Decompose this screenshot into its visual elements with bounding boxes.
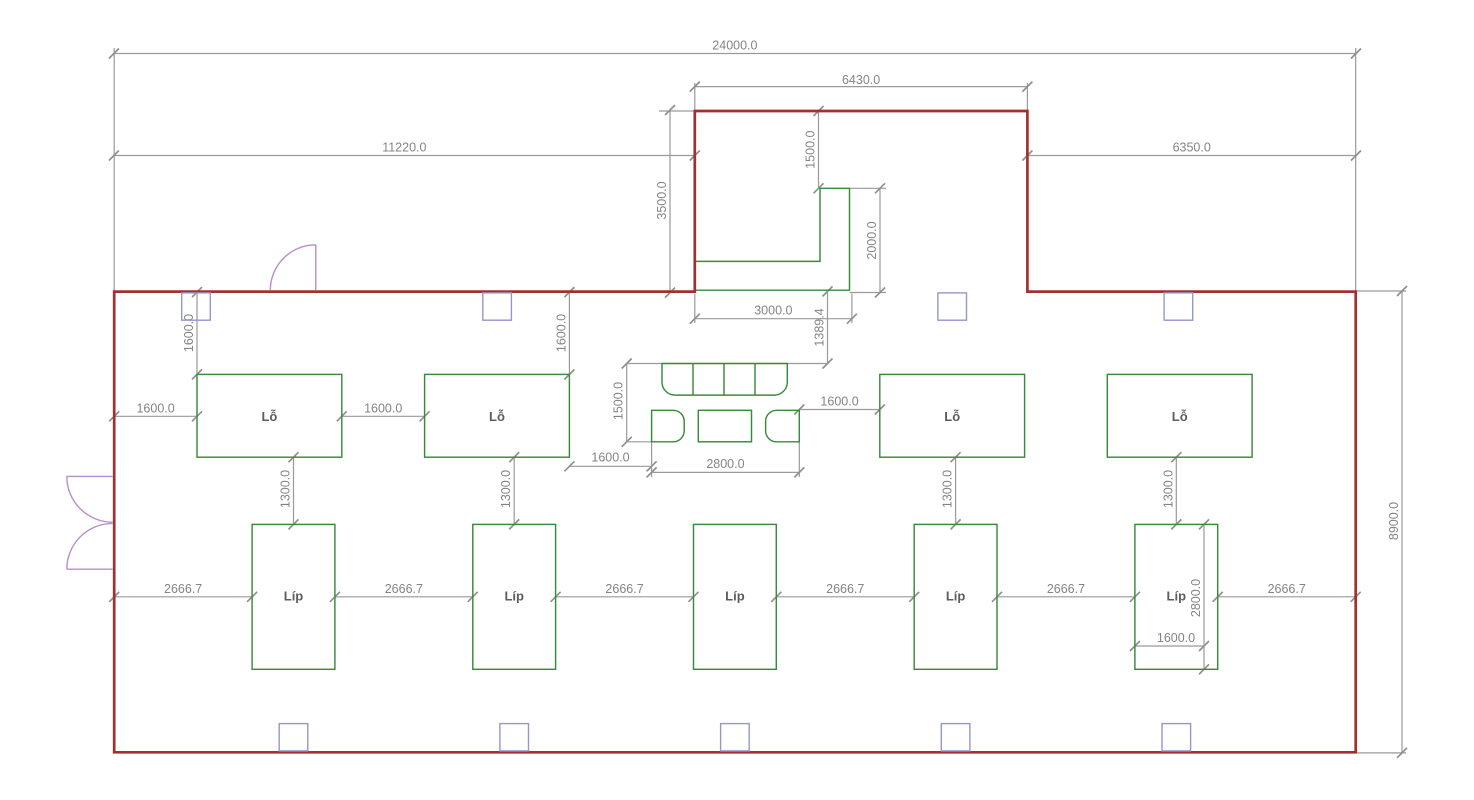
svg-text:1300.0: 1300.0 (279, 470, 293, 508)
svg-text:3500.0: 3500.0 (655, 181, 669, 219)
svg-text:1300.0: 1300.0 (941, 470, 955, 508)
svg-text:Lỗ: Lỗ (944, 409, 960, 424)
svg-text:1300.0: 1300.0 (1161, 470, 1175, 508)
svg-text:2666.7: 2666.7 (385, 582, 423, 596)
svg-text:1600.0: 1600.0 (591, 450, 629, 464)
svg-text:1389.4: 1389.4 (813, 308, 827, 346)
svg-text:24000.0: 24000.0 (712, 39, 757, 53)
svg-text:1500.0: 1500.0 (612, 382, 626, 420)
svg-text:2666.7: 2666.7 (605, 582, 643, 596)
svg-text:Líp: Líp (725, 589, 745, 604)
svg-text:6350.0: 6350.0 (1173, 141, 1211, 155)
svg-text:11220.0: 11220.0 (382, 141, 426, 155)
svg-text:2666.7: 2666.7 (1268, 582, 1306, 596)
svg-text:Líp: Líp (1167, 589, 1187, 604)
svg-text:3000.0: 3000.0 (754, 304, 792, 318)
svg-text:2666.7: 2666.7 (1047, 582, 1085, 596)
svg-text:Líp: Líp (946, 589, 966, 604)
svg-text:1600.0: 1600.0 (554, 314, 568, 352)
svg-text:Lỗ: Lỗ (489, 409, 505, 424)
svg-text:1500.0: 1500.0 (804, 130, 818, 168)
svg-text:1600.0: 1600.0 (364, 401, 402, 415)
svg-text:2000.0: 2000.0 (865, 221, 879, 259)
svg-text:6430.0: 6430.0 (842, 73, 880, 87)
svg-text:2800.0: 2800.0 (1189, 579, 1203, 617)
svg-text:Líp: Líp (504, 589, 524, 604)
svg-text:2666.7: 2666.7 (826, 582, 864, 596)
svg-text:1600.0: 1600.0 (136, 401, 174, 415)
svg-text:1600.0: 1600.0 (1157, 631, 1195, 645)
svg-text:Lỗ: Lỗ (1172, 409, 1188, 424)
svg-text:2800.0: 2800.0 (706, 457, 744, 471)
svg-text:2666.7: 2666.7 (164, 582, 202, 596)
svg-text:1600.0: 1600.0 (820, 395, 858, 409)
svg-text:1300.0: 1300.0 (499, 470, 513, 508)
svg-text:8900.0: 8900.0 (1387, 502, 1401, 540)
svg-text:Líp: Líp (284, 589, 304, 604)
svg-text:Lỗ: Lỗ (261, 409, 277, 424)
